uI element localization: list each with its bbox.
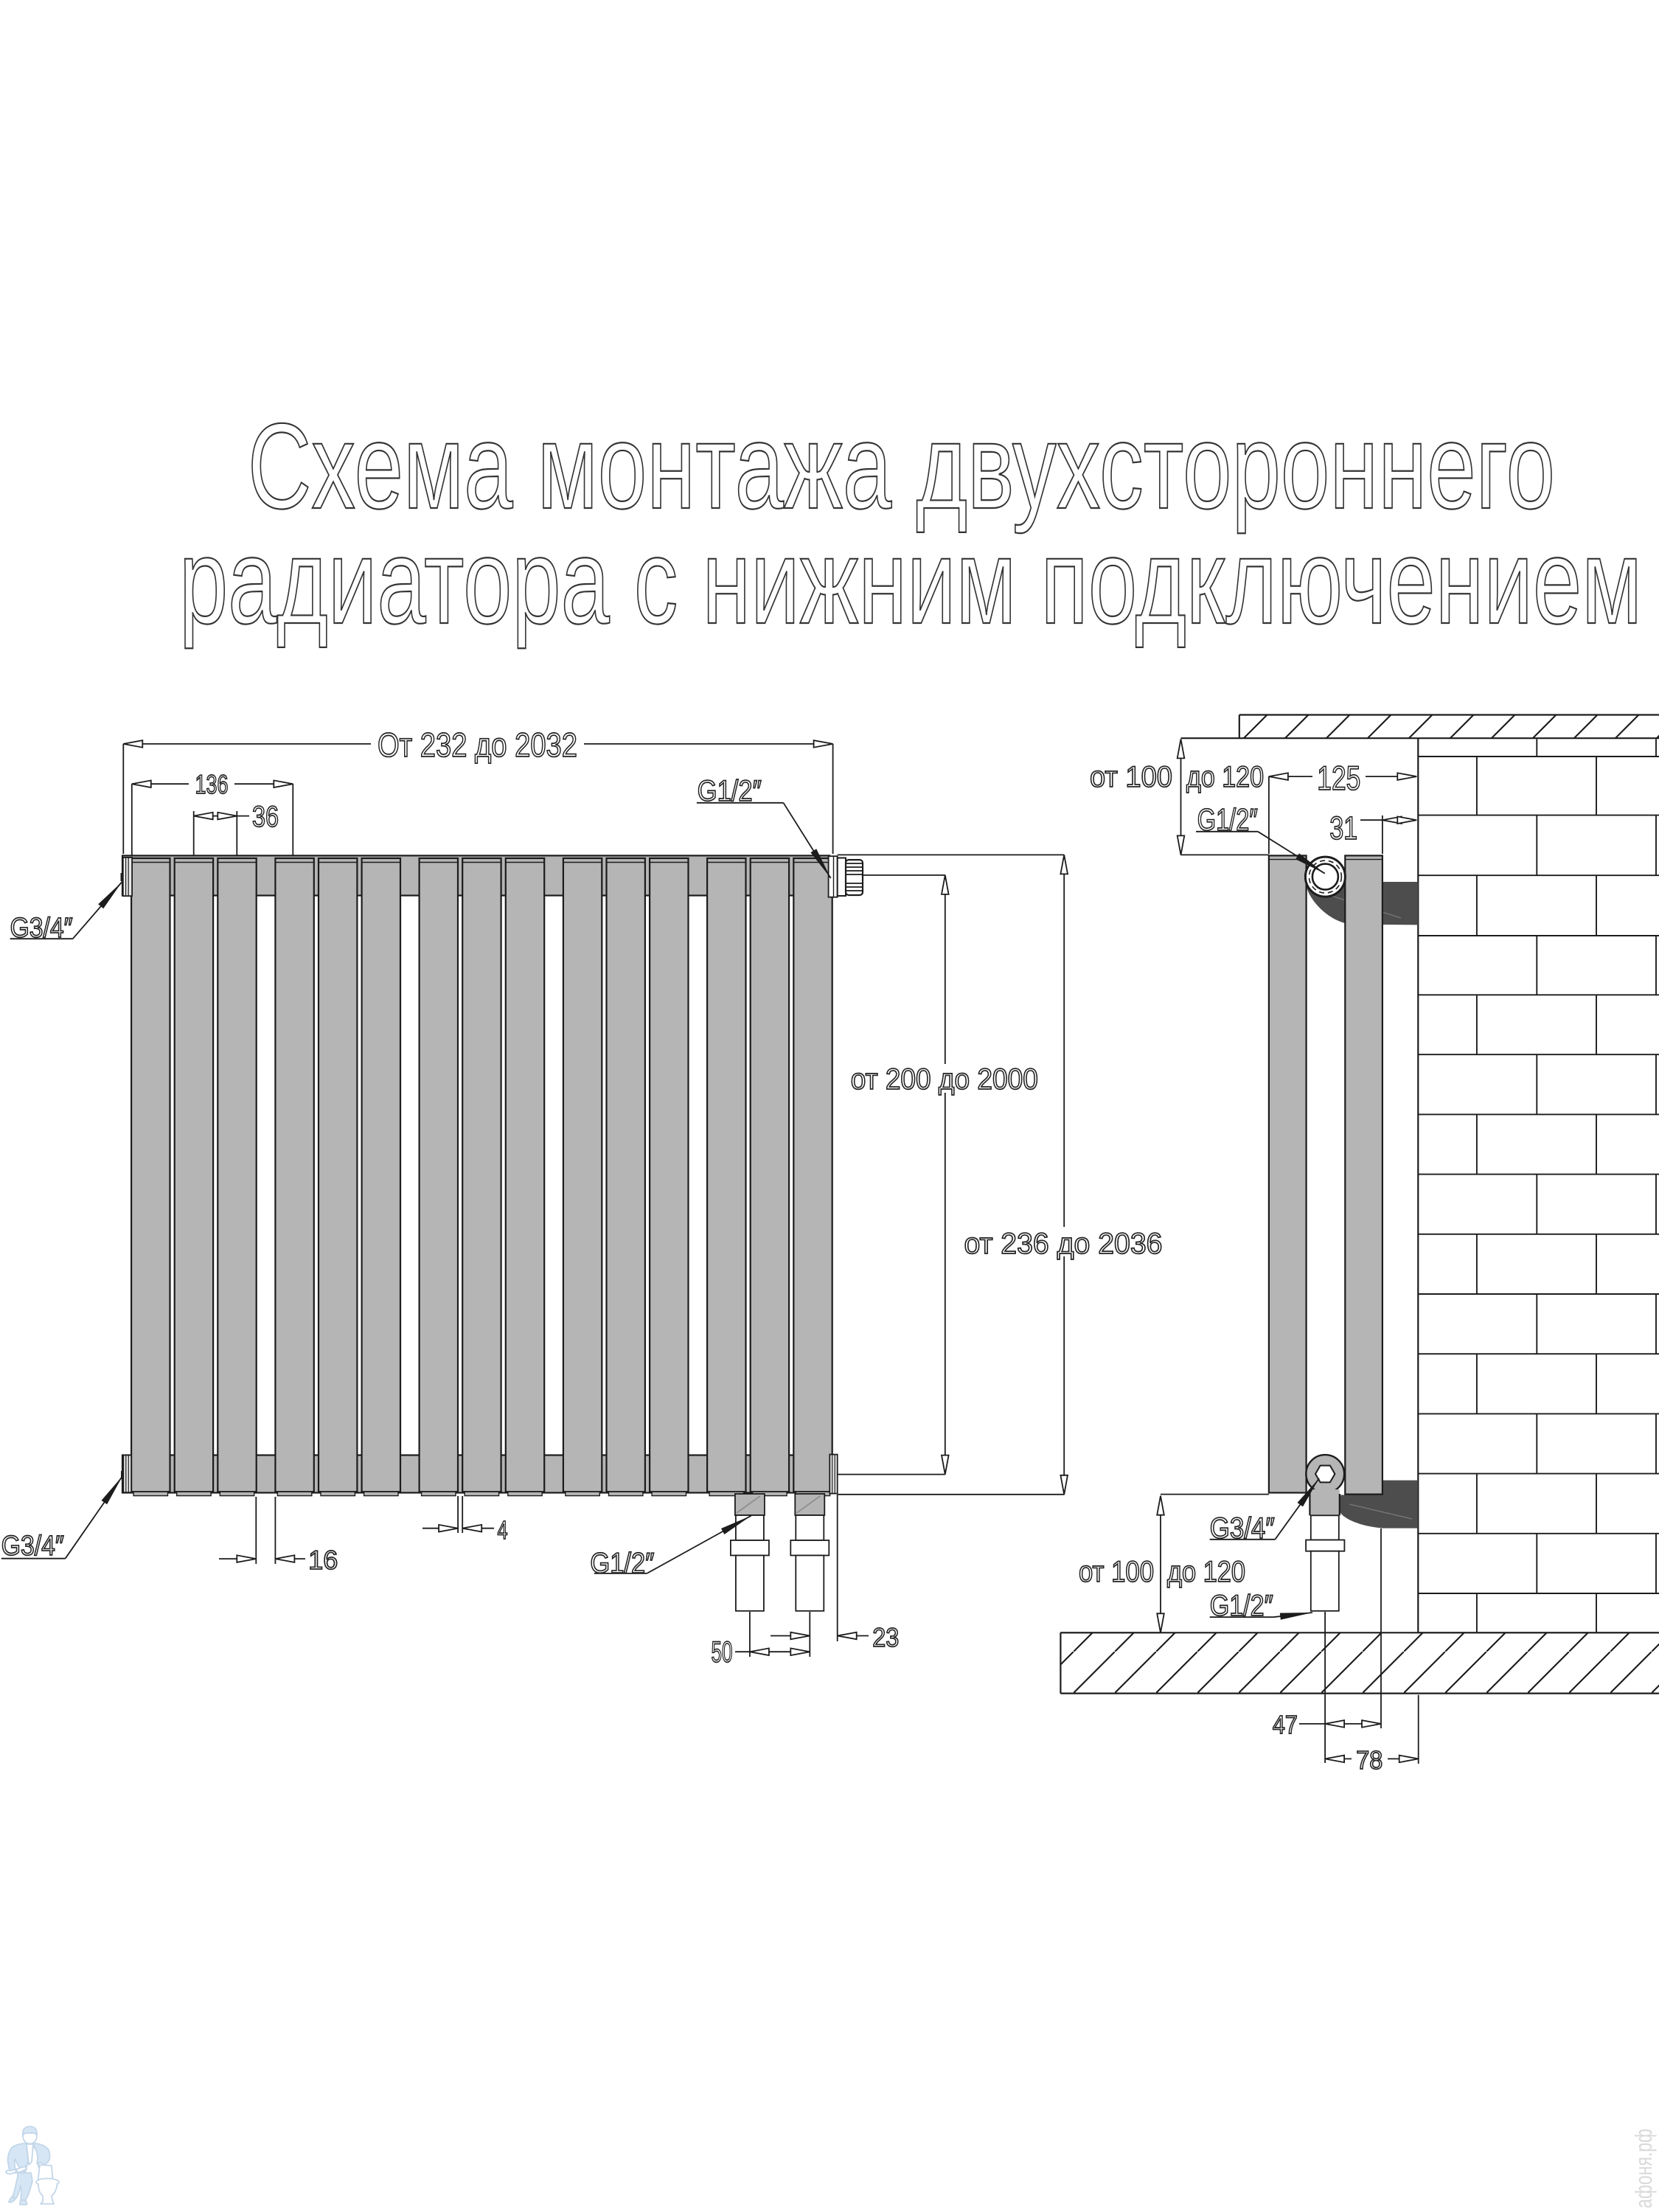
svg-text:G3/4″: G3/4″ <box>1 1531 64 1562</box>
svg-text:от 236 до 2036: от 236 до 2036 <box>964 1228 1163 1260</box>
svg-text:от 200 до 2000: от 200 до 2000 <box>851 1063 1038 1096</box>
svg-text:до 120: до 120 <box>1186 761 1264 793</box>
svg-text:47: 47 <box>1273 1711 1298 1739</box>
svg-text:от 100: от 100 <box>1079 1556 1154 1588</box>
svg-text:50: 50 <box>712 1636 733 1669</box>
svg-text:78: 78 <box>1356 1746 1382 1775</box>
svg-text:афоня.рф: афоня.рф <box>1630 2129 1657 2208</box>
svg-text:16: 16 <box>308 1545 338 1575</box>
svg-text:от 100: от 100 <box>1090 761 1172 793</box>
svg-text:радиатора с нижним подключение: радиатора с нижним подключением <box>179 513 1642 649</box>
svg-text:136: 136 <box>195 769 229 799</box>
svg-text:23: 23 <box>872 1622 899 1652</box>
svg-text:От 232 до 2032: От 232 до 2032 <box>378 726 577 764</box>
svg-text:31: 31 <box>1329 810 1357 846</box>
svg-text:36: 36 <box>252 801 279 833</box>
svg-text:до 120: до 120 <box>1167 1556 1245 1588</box>
svg-text:125: 125 <box>1317 759 1360 797</box>
svg-text:G1/2″: G1/2″ <box>590 1548 654 1579</box>
svg-text:4: 4 <box>498 1516 508 1545</box>
